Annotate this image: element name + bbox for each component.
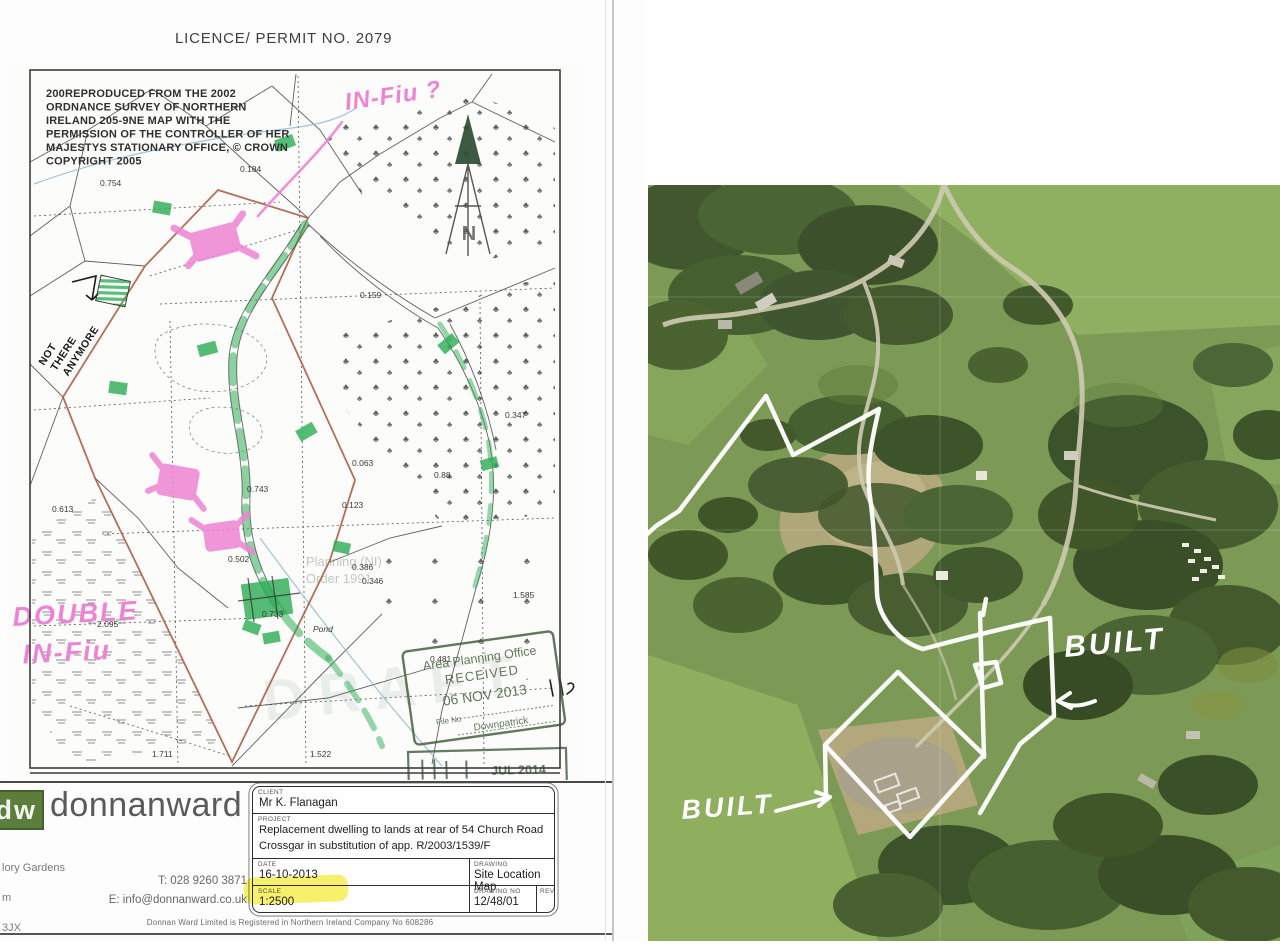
scanned-planning-document: LICENCE/ PERMIT NO. 2079 ♣ ♣ ♣ DRAFT Pla… <box>0 0 645 941</box>
scan-page-edge-line <box>612 0 614 941</box>
svg-text:ORDNANCE SURVEY OF NORTHERN: ORDNANCE SURVEY OF NORTHERN <box>46 102 247 114</box>
svg-text:0.743: 0.743 <box>247 484 269 494</box>
dw-logo-letters: dw <box>0 795 37 826</box>
dw-logo: dw <box>0 790 44 830</box>
svg-text:JUL 2014: JUL 2014 <box>491 762 546 777</box>
svg-text:0.88: 0.88 <box>434 470 451 480</box>
svg-text:1.522: 1.522 <box>310 749 332 759</box>
svg-text:0.159: 0.159 <box>360 290 382 300</box>
drawing-label: DRAWING <box>474 861 508 868</box>
svg-text:N: N <box>462 223 476 245</box>
licence-permit-title: LICENCE/ PERMIT NO. 2079 <box>175 30 392 47</box>
svg-text:PERMISSION OF THE CONTROLLER O: PERMISSION OF THE CONTROLLER OF HER <box>46 129 290 141</box>
page-bottom-rule <box>0 933 612 935</box>
drawing-no-value: 12/48/01 <box>474 896 519 908</box>
title-block-top-rule <box>0 781 612 783</box>
svg-text:0.386: 0.386 <box>352 562 374 572</box>
svg-text:200REPRODUCED FROM THE 2002: 200REPRODUCED FROM THE 2002 <box>46 88 236 100</box>
rev-label: REV <box>540 888 555 895</box>
project-line2: Crossgar in substitution of app. R/2003/… <box>259 840 490 852</box>
client-label: CLIENT <box>258 789 284 796</box>
project-line1: Replacement dwelling to lands at rear of… <box>259 824 543 836</box>
company-name: donnanward <box>50 786 242 825</box>
hatched-green-building <box>96 275 131 307</box>
svg-text:0.184: 0.184 <box>240 164 262 174</box>
svg-text:0.063: 0.063 <box>352 458 374 468</box>
yellow-highlighter-on-scale <box>244 874 349 905</box>
svg-text:IRELAND 205-9NE MAP WITH THE: IRELAND 205-9NE MAP WITH THE <box>46 115 230 127</box>
email-address: E: info@donnanward.co.uk <box>20 891 247 910</box>
svg-text:2.095: 2.095 <box>97 619 119 629</box>
svg-text:1.711: 1.711 <box>152 749 173 759</box>
svg-text:0.754: 0.754 <box>100 178 122 188</box>
svg-text:0.502: 0.502 <box>228 554 250 564</box>
svg-text:IN-Fiu: IN-Fiu <box>22 635 112 670</box>
svg-text:0.346: 0.346 <box>362 576 384 586</box>
company-registration-footer: Donnan Ward Limited is Registered in Nor… <box>110 918 470 927</box>
client-value: Mr K. Flanagan <box>259 797 338 809</box>
svg-text:0.123: 0.123 <box>342 500 364 510</box>
drawing-no-label: DRAWING NO <box>474 888 521 895</box>
site-location-map: ♣ ♣ ♣ DRAFT Planning (NI) Order 1991 <box>10 66 580 780</box>
svg-text:0.347: 0.347 <box>505 410 527 420</box>
pond-label: Pond <box>313 624 333 634</box>
scan-page-edge-shadow <box>605 0 606 941</box>
phone-number: T: 028 9260 3871 <box>20 872 247 891</box>
project-row: PROJECT Replacement dwelling to lands at… <box>253 813 554 858</box>
svg-text:0.733: 0.733 <box>262 609 284 619</box>
svg-text:COPYRIGHT 2005: COPYRIGHT 2005 <box>46 156 142 168</box>
project-label: PROJECT <box>258 816 291 823</box>
svg-text:1.585: 1.585 <box>513 590 535 600</box>
client-row: CLIENT Mr K. Flanagan <box>253 787 554 813</box>
svg-text:0.613: 0.613 <box>52 504 74 514</box>
aerial-photograph: BUILT BUILT <box>648 185 1280 941</box>
svg-text:MAJESTYS STATIONARY OFFICE, ©: MAJESTYS STATIONARY OFFICE, © CROWN <box>46 142 288 154</box>
date-label: DATE <box>258 861 276 868</box>
company-contacts: T: 028 9260 3871 E: info@donnanward.co.u… <box>20 872 247 910</box>
